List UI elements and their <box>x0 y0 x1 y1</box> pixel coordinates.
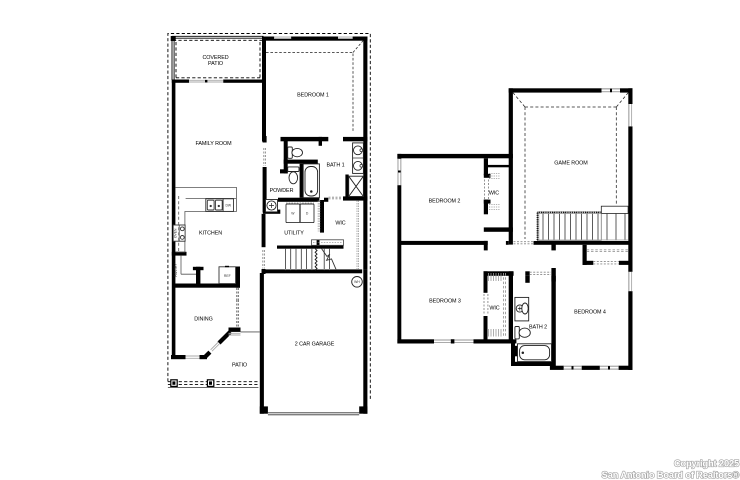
svg-text:BEDROOM 1: BEDROOM 1 <box>297 93 329 99</box>
svg-text:KITCHEN: KITCHEN <box>199 231 222 237</box>
svg-text:BEDROOM 4: BEDROOM 4 <box>574 310 606 316</box>
svg-text:WIC: WIC <box>335 221 345 227</box>
svg-text:BEDROOM 2: BEDROOM 2 <box>429 199 461 205</box>
svg-text:BATH 2: BATH 2 <box>529 325 547 331</box>
svg-text:PATIO: PATIO <box>208 61 223 67</box>
svg-text:San Antonio Board of Realtors®: San Antonio Board of Realtors® <box>602 470 740 480</box>
svg-text:2 CAR GARAGE: 2 CAR GARAGE <box>295 342 335 348</box>
svg-text:GAME ROOM: GAME ROOM <box>554 161 588 167</box>
svg-text:WIC: WIC <box>489 191 499 197</box>
svg-text:Copyright 2025: Copyright 2025 <box>674 459 739 469</box>
svg-text:BATH 1: BATH 1 <box>327 163 345 169</box>
svg-text:REF: REF <box>224 274 231 278</box>
svg-text:BEDROOM 3: BEDROOM 3 <box>429 299 461 305</box>
svg-text:DW: DW <box>225 204 231 208</box>
svg-text:WH: WH <box>354 280 360 284</box>
svg-text:FAMILY ROOM: FAMILY ROOM <box>195 141 232 147</box>
svg-text:PATIO: PATIO <box>232 363 247 369</box>
svg-text:UTILITY: UTILITY <box>284 231 304 237</box>
svg-text:DINING: DINING <box>194 317 212 323</box>
svg-text:POWDER: POWDER <box>270 188 294 194</box>
svg-text:WIC: WIC <box>489 306 499 312</box>
svg-text:OVEN: OVEN <box>173 228 177 238</box>
svg-text:PANTRY: PANTRY <box>174 263 178 277</box>
svg-text:COVERED: COVERED <box>202 55 228 61</box>
